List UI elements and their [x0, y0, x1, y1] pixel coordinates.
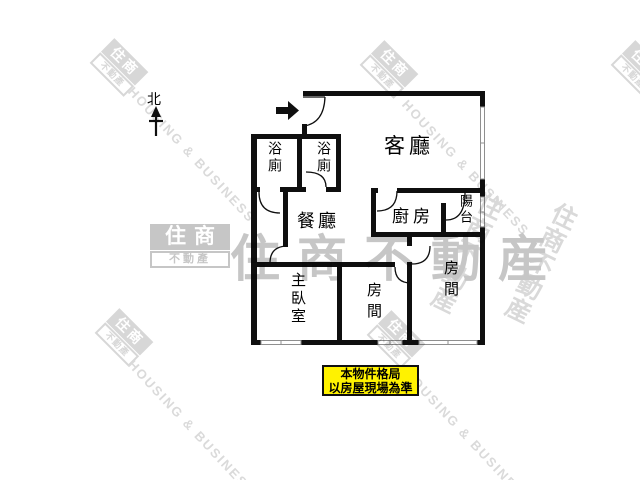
wall-kitchen-bottom [371, 232, 485, 237]
door-bath-left-arc [259, 192, 280, 213]
north-arrow-icon [149, 106, 163, 136]
door-bedroom-right-arc [412, 246, 430, 264]
room-label-balcony: 陽台 [456, 194, 475, 226]
room-label-bedroom-right: 房間 [440, 260, 461, 302]
wall-bottom-3 [402, 340, 419, 345]
wall-bottom-2 [301, 340, 378, 345]
wall-bottom-4 [477, 340, 485, 345]
floorplan-drawing [0, 0, 640, 480]
wall-bath-top [251, 134, 341, 139]
wall-hall-divider [283, 189, 288, 247]
wall-balcony-left [441, 203, 446, 232]
room-label-bedroom-middle: 房間 [363, 282, 384, 324]
wall-bath-divider [297, 139, 302, 192]
wall-kitchen-left [371, 188, 376, 237]
wall-bath-bottom-1 [251, 187, 260, 192]
wall-bedrooms-top [251, 262, 395, 267]
wall-bottom-1 [251, 340, 261, 345]
disclaimer-note: 本物件格局 以房屋現場為準 [322, 365, 419, 396]
wall-mid-right-divider-1 [407, 232, 412, 246]
wall-left-outer [251, 134, 257, 345]
wall-right-outer-3 [480, 227, 485, 345]
room-label-living: 客廳 [384, 130, 434, 160]
disclaimer-line-1: 本物件格局 [324, 368, 417, 382]
wall-bath-right [336, 139, 341, 192]
wall-mid-right-divider-2 [407, 262, 412, 345]
door-master-arc [270, 246, 288, 263]
room-label-dining: 餐廳 [297, 207, 339, 233]
room-label-master-bedroom: 主臥室 [287, 272, 308, 326]
north-label: 北 [147, 89, 161, 109]
wall-kitchen-top-2 [397, 188, 485, 193]
wall-right-outer-1 [480, 91, 485, 108]
room-label-bath-left: 浴廁 [263, 141, 283, 175]
wall-master-mid-divider [337, 267, 342, 345]
entrance-arrow-icon [276, 101, 299, 120]
room-label-bath-right: 浴廁 [312, 141, 332, 175]
wall-bath-bottom-3 [326, 187, 341, 192]
floorplan-screenshot: 北 客廳 餐廳 廚房 陽台 浴廁 浴廁 主臥室 房間 房間 住商 不動產 住商 … [0, 0, 640, 480]
wall-right-outer-2 [480, 179, 485, 197]
room-label-kitchen: 廚房 [392, 202, 434, 227]
disclaimer-line-2: 以房屋現場為準 [324, 382, 417, 396]
door-entrance-arc [304, 97, 325, 126]
wall-top [303, 91, 485, 96]
